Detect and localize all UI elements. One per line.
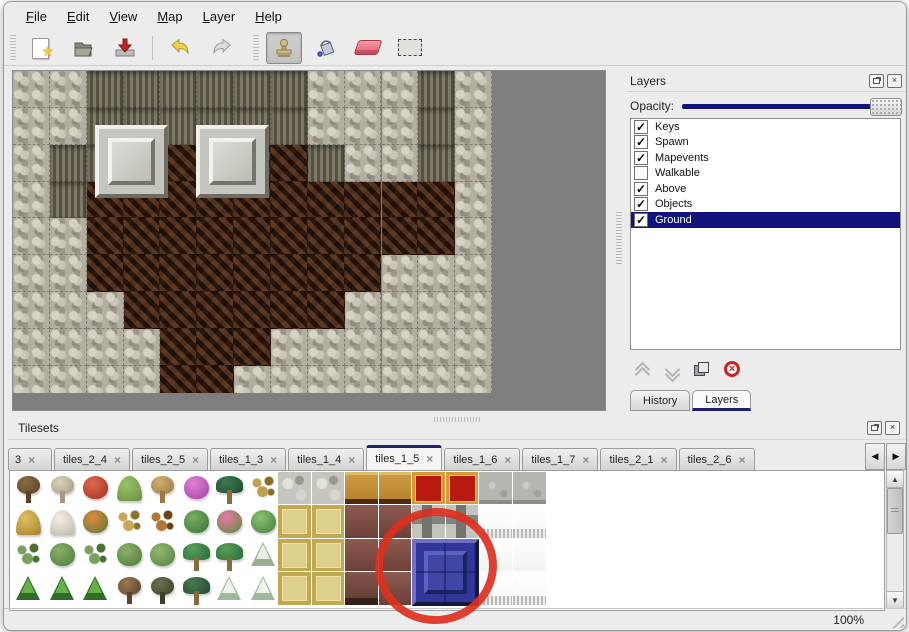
palette-tile-whitefringe[interactable] (479, 572, 512, 605)
tab-close-icon[interactable]: × (582, 454, 589, 466)
map-tile-brown-floor (234, 292, 271, 329)
palette-tile-conifer[interactable] (79, 574, 112, 607)
palette-tile-mound[interactable] (12, 507, 45, 540)
palette-tile-tancarpet[interactable] (312, 572, 345, 605)
map-tile-light-rock (271, 366, 308, 393)
map-tile-light-rock (308, 329, 345, 366)
palette-tile-tree[interactable] (113, 574, 146, 607)
tileset-tab-tiles_2_1[interactable]: tiles_2_1× (600, 448, 676, 470)
layers-panel-title: Layers (630, 74, 666, 88)
map-tile-light-rock (50, 108, 87, 145)
map-tile-light-rock (87, 329, 124, 366)
map-tile-light-rock (418, 255, 455, 292)
tileset-palette[interactable] (9, 470, 885, 611)
scrollbar-thumb[interactable] (887, 488, 903, 534)
map-tile-light-rock (124, 366, 161, 393)
map-tile-light-rock (13, 71, 50, 108)
zoom-level: 100% (833, 613, 864, 627)
palette-tile-sprig[interactable] (146, 507, 179, 540)
palette-tile-conifer[interactable] (247, 574, 280, 607)
palette-tile-blob[interactable] (79, 473, 112, 506)
tab-label: tiles_1_7 (531, 454, 575, 466)
palette-tile-wood[interactable] (379, 472, 412, 505)
palette-tile-tree[interactable] (12, 473, 45, 506)
map-canvas-panel (12, 70, 606, 411)
tab-prev-icon[interactable]: ◀ (865, 443, 885, 470)
layer-checkbox[interactable]: ✓ (634, 151, 648, 165)
map-tile-light-rock (13, 292, 50, 329)
map-tile-light-rock (382, 71, 419, 108)
palette-tile-blob[interactable] (180, 507, 213, 540)
menu-edit[interactable]: Edit (57, 6, 99, 27)
palette-tile-tree[interactable] (146, 473, 179, 506)
layer-row-objects[interactable]: ✓Objects (631, 197, 900, 213)
eraser-tool-button[interactable] (350, 32, 386, 64)
layer-row-walkable[interactable]: Walkable (631, 166, 900, 182)
palette-tile-brown[interactable] (379, 505, 412, 538)
map-tile-light-rock (382, 255, 419, 292)
app-window: FileEditViewMapLayerHelp ★ (3, 1, 907, 631)
tilesets-title: Tilesets (18, 421, 59, 435)
palette-tile-blob[interactable] (146, 540, 179, 573)
map-tile-light-rock (50, 218, 87, 255)
opacity-slider-handle[interactable] (870, 98, 902, 116)
map-tile-light-rock (382, 292, 419, 329)
tab-label: tiles_1_6 (453, 454, 497, 466)
layer-name: Spawn (655, 136, 689, 148)
map-tile-brown-floor (382, 182, 419, 219)
map-tile-brown-floor (271, 292, 308, 329)
resize-grip[interactable] (889, 613, 904, 628)
tilesets-titlebar: Tilesets × (8, 416, 906, 440)
map-tile-light-rock (382, 108, 419, 145)
layers-panel: Layers × Opacity: ✓Keys✓Spawn✓MapeventsW… (626, 70, 906, 411)
map-tile-light-rock (87, 292, 124, 329)
stamp-tool-button[interactable] (266, 32, 302, 64)
scroll-down-icon[interactable]: ▼ (887, 591, 903, 608)
palette-tile-tancarpet[interactable] (312, 505, 345, 538)
map-tile-light-rock (308, 71, 345, 108)
palette-tile-blob[interactable] (213, 507, 246, 540)
map-tile-brown-floor (87, 255, 124, 292)
map-tile-brown-floor (271, 255, 308, 292)
palette-tile-graystone[interactable] (513, 472, 546, 505)
fill-bucket-icon (314, 36, 338, 60)
palette-tile-blob[interactable] (247, 507, 280, 540)
map-tile-light-rock (13, 366, 50, 393)
undo-icon (168, 36, 192, 60)
map-tile-light-rock (271, 329, 308, 366)
map-tile-brown-floor (124, 218, 161, 255)
opacity-slider-track[interactable] (682, 104, 900, 109)
layer-row-above[interactable]: ✓Above (631, 181, 900, 197)
map-tile-light-rock (345, 329, 382, 366)
map-tile-light-rock (13, 218, 50, 255)
menu-file[interactable]: File (16, 6, 57, 27)
layer-row-ground[interactable]: ✓Ground (631, 212, 900, 228)
palette-tile-sprig[interactable] (247, 473, 280, 506)
palette-tile-browndark[interactable] (345, 572, 378, 605)
dock-tab-layers[interactable]: Layers (692, 390, 751, 411)
tab-close-icon[interactable]: × (660, 454, 667, 466)
palette-tile-white[interactable] (513, 539, 546, 572)
open-folder-icon (71, 36, 95, 60)
palette-tile-tancarpet[interactable] (278, 539, 311, 572)
tab-close-icon[interactable]: × (348, 454, 355, 466)
select-tool-button[interactable] (392, 32, 428, 64)
map-tile-light-rock (345, 108, 382, 145)
map-tile-brown-floor (345, 218, 382, 255)
tab-label: tiles_2_6 (688, 454, 732, 466)
close-panel-icon[interactable]: × (887, 74, 902, 88)
map-tile-brown-floor (308, 218, 345, 255)
palette-tile-tree[interactable] (146, 574, 179, 607)
map-tile-dark-cliff (418, 145, 455, 182)
tileset-tab-tiles_2_6[interactable]: tiles_2_6× (679, 448, 755, 470)
move-layer-up-icon[interactable] (634, 361, 650, 377)
new-file-icon: ★ (31, 37, 51, 59)
palette-tile-sprig[interactable] (79, 540, 112, 573)
layer-buttons: × (634, 356, 894, 382)
map-tile-brown-floor (197, 329, 234, 366)
move-layer-down-icon[interactable] (664, 361, 680, 377)
map-tile-light-rock (13, 145, 50, 182)
tileset-tabbar: 3×tiles_2_4×tiles_2_5×tiles_1_3×tiles_1_… (8, 442, 906, 470)
layer-checkbox[interactable] (634, 166, 648, 180)
stamp-icon (272, 36, 296, 60)
tab-close-icon[interactable]: × (739, 454, 746, 466)
layer-name: Mapevents (655, 152, 709, 164)
palette-tile-wood[interactable] (345, 472, 378, 505)
layer-checkbox[interactable]: ✓ (634, 213, 648, 227)
map-tile-light-rock (382, 329, 419, 366)
palette-tile-brown[interactable] (379, 572, 412, 605)
map-tile-light-rock (308, 366, 345, 393)
map-tile-brown-floor (345, 182, 382, 219)
map-tile-brown-floor (234, 329, 271, 366)
layer-row-mapevents[interactable]: ✓Mapevents (631, 150, 900, 166)
layer-name: Walkable (655, 167, 700, 179)
map-tile-light-rock (455, 182, 492, 219)
palette-tile-stone[interactable] (278, 472, 311, 505)
map-canvas[interactable] (13, 71, 492, 393)
map-tile-light-rock (124, 329, 161, 366)
dock-tab-history[interactable]: History (630, 390, 690, 411)
tab-close-icon[interactable]: × (114, 454, 121, 466)
map-tile-dark-cliff (418, 108, 455, 145)
map-tile-light-rock (50, 329, 87, 366)
float-panel-icon[interactable] (869, 74, 884, 88)
map-tile-brown-floor (160, 329, 197, 366)
map-tile-light-rock (345, 145, 382, 182)
layer-row-keys[interactable]: ✓Keys (631, 119, 900, 135)
palette-tile-brown[interactable] (345, 505, 378, 538)
tileset-tab-3[interactable]: 3× (8, 448, 52, 470)
palette-tile-brown[interactable] (379, 539, 412, 572)
toolbar: ★ (4, 30, 906, 66)
map-tile-dark-cliff (50, 145, 87, 182)
map-tile-light-rock (50, 71, 87, 108)
save-icon (113, 36, 137, 60)
map-tile-brown-floor (124, 255, 161, 292)
palette-tile-metal[interactable] (412, 505, 445, 538)
map-tile-light-rock (345, 292, 382, 329)
layer-checkbox[interactable]: ✓ (634, 197, 648, 211)
palette-tile-graystone[interactable] (479, 472, 512, 505)
palette-scrollbar[interactable]: ▲ ▼ (886, 470, 904, 609)
stone-platform (196, 125, 269, 198)
tab-label: tiles_2_4 (63, 454, 107, 466)
status-bar: 100% (4, 608, 906, 630)
menu-view[interactable]: View (99, 6, 147, 27)
map-tile-light-rock (87, 366, 124, 393)
map-tile-brown-floor (197, 255, 234, 292)
map-tile-light-rock (13, 255, 50, 292)
map-tile-brown-floor (197, 218, 234, 255)
map-tile-dark-cliff (197, 71, 234, 108)
tileset-tab-tiles_1_6[interactable]: tiles_1_6× (444, 448, 520, 470)
tab-close-icon[interactable]: × (192, 454, 199, 466)
layer-checkbox[interactable]: ✓ (634, 135, 648, 149)
layer-checkbox[interactable]: ✓ (634, 120, 648, 134)
palette-tile-brown[interactable] (345, 539, 378, 572)
map-tile-dark-cliff (418, 71, 455, 108)
map-tile-brown-floor (418, 218, 455, 255)
palette-tile-conifer[interactable] (12, 574, 45, 607)
map-tile-brown-floor (234, 255, 271, 292)
eraser-icon (354, 40, 383, 55)
map-tile-dark-cliff (271, 108, 308, 145)
map-tile-light-rock (50, 292, 87, 329)
map-tile-brown-floor (271, 218, 308, 255)
layer-name: Ground (655, 214, 692, 226)
map-tile-brown-floor (382, 218, 419, 255)
map-tile-light-rock (234, 366, 271, 393)
map-tile-brown-floor (160, 292, 197, 329)
tab-next-icon[interactable]: ▶ (886, 443, 906, 470)
tab-label: tiles_2_5 (141, 454, 185, 466)
tab-label: tiles_2_1 (609, 454, 653, 466)
palette-tile-palm[interactable] (180, 540, 213, 573)
palette-tile-conifer[interactable] (46, 574, 79, 607)
map-tile-light-rock (455, 108, 492, 145)
map-tile-brown-floor (418, 182, 455, 219)
layers-panel-titlebar: Layers × (626, 70, 906, 92)
map-tile-light-rock (455, 329, 492, 366)
layer-checkbox[interactable]: ✓ (634, 182, 648, 196)
map-tile-light-rock (308, 108, 345, 145)
palette-tile-tancarpet[interactable] (312, 539, 345, 572)
redo-button[interactable] (204, 32, 240, 64)
tileset-tab-tiles_2_4[interactable]: tiles_2_4× (54, 448, 130, 470)
map-tile-dark-cliff (87, 71, 124, 108)
menu-help[interactable]: Help (245, 6, 292, 27)
new-file-button[interactable]: ★ (23, 32, 59, 64)
palette-tile-conifer[interactable] (247, 540, 280, 573)
fill-tool-button[interactable] (308, 32, 344, 64)
map-tile-brown-floor (197, 292, 234, 329)
tab-label: tiles_1_5 (375, 453, 419, 465)
selected-tile-blue[interactable] (412, 539, 479, 606)
map-tile-brown-floor (234, 218, 271, 255)
map-tile-brown-floor (271, 145, 308, 182)
redo-icon (210, 36, 234, 60)
map-tile-light-rock (382, 145, 419, 182)
map-tile-brown-floor (308, 292, 345, 329)
palette-tile-palm[interactable] (213, 473, 246, 506)
map-tile-light-rock (418, 292, 455, 329)
map-tile-light-rock (50, 255, 87, 292)
palette-tile-redcarpet[interactable] (412, 472, 445, 505)
layer-name: Above (655, 183, 686, 195)
tileset-tab-tiles_1_4[interactable]: tiles_1_4× (288, 448, 364, 470)
vertical-splitter[interactable] (616, 212, 622, 264)
palette-tile-metal[interactable] (446, 505, 479, 538)
map-tile-light-rock (382, 366, 419, 393)
palette-tile-tree[interactable] (46, 473, 79, 506)
menu-layer[interactable]: Layer (193, 6, 246, 27)
tileset-tab-tiles_1_5[interactable]: tiles_1_5× (366, 445, 442, 470)
palette-tile-conifer[interactable] (213, 574, 246, 607)
undo-button[interactable] (162, 32, 198, 64)
map-tile-brown-floor (160, 255, 197, 292)
palette-tile-redcarpet[interactable] (446, 472, 479, 505)
palette-tile-sprig[interactable] (12, 540, 45, 573)
tileset-tab-tiles_1_7[interactable]: tiles_1_7× (522, 448, 598, 470)
toolbar-grip-2[interactable] (253, 35, 259, 61)
map-tile-light-rock (50, 366, 87, 393)
map-tile-dark-cliff (308, 145, 345, 182)
tab-close-icon[interactable]: × (270, 454, 277, 466)
map-tile-light-rock (13, 108, 50, 145)
map-tile-light-rock (455, 292, 492, 329)
map-tile-light-rock (418, 329, 455, 366)
opacity-slider[interactable] (682, 98, 902, 114)
tileset-tab-tiles_1_3[interactable]: tiles_1_3× (210, 448, 286, 470)
palette-tile-palm[interactable] (180, 574, 213, 607)
map-tile-brown-floor (308, 182, 345, 219)
layer-row-spawn[interactable]: ✓Spawn (631, 135, 900, 151)
menu-bar: FileEditViewMapLayerHelp (4, 2, 906, 30)
palette-tile-tancarpet[interactable] (278, 505, 311, 538)
map-tile-brown-floor (160, 366, 197, 393)
map-tile-light-rock (345, 71, 382, 108)
tab-label: tiles_1_3 (219, 454, 263, 466)
palette-tile-whitefringe[interactable] (513, 505, 546, 538)
close-tilesets-icon[interactable]: × (885, 421, 900, 435)
palette-tile-stone[interactable] (312, 472, 345, 505)
float-tilesets-icon[interactable] (867, 421, 882, 435)
tab-close-icon[interactable]: × (28, 454, 35, 466)
tab-label: tiles_1_4 (297, 454, 341, 466)
tab-label: 3 (15, 454, 21, 466)
layer-list: ✓Keys✓Spawn✓MapeventsWalkable✓Above✓Obje… (630, 118, 901, 350)
delete-layer-icon[interactable]: × (724, 361, 740, 377)
open-file-button[interactable] (65, 32, 101, 64)
map-tile-light-rock (418, 366, 455, 393)
palette-tile-white[interactable] (479, 539, 512, 572)
map-tile-light-rock (455, 145, 492, 182)
map-tile-brown-floor (160, 218, 197, 255)
map-tile-brown-floor (271, 182, 308, 219)
palette-tile-blob[interactable] (46, 540, 79, 573)
palette-tile-mound[interactable] (113, 473, 146, 506)
map-tile-light-rock (455, 218, 492, 255)
tab-close-icon[interactable]: × (504, 454, 511, 466)
save-file-button[interactable] (107, 32, 143, 64)
select-rect-icon (398, 39, 422, 56)
map-tile-light-rock (455, 71, 492, 108)
map-tile-brown-floor (308, 255, 345, 292)
map-tile-brown-floor (197, 366, 234, 393)
dock-tabs: HistoryLayers (630, 390, 751, 411)
palette-tile-blob[interactable] (113, 540, 146, 573)
tab-close-icon[interactable]: × (426, 453, 433, 465)
palette-tile-whitefringe[interactable] (513, 572, 546, 605)
map-tile-brown-floor (87, 218, 124, 255)
palette-tile-palm[interactable] (213, 540, 246, 573)
map-tile-brown-floor (124, 292, 161, 329)
palette-tile-sprig[interactable] (113, 507, 146, 540)
map-tile-brown-floor (345, 255, 382, 292)
toolbar-separator (152, 36, 153, 60)
menu-map[interactable]: Map (147, 6, 192, 27)
toolbar-grip[interactable] (10, 35, 16, 61)
layer-name: Keys (655, 121, 679, 133)
map-tile-light-rock (455, 366, 492, 393)
palette-tile-blob[interactable] (79, 507, 112, 540)
duplicate-layer-icon[interactable] (694, 362, 710, 376)
opacity-label: Opacity: (630, 99, 674, 113)
map-tile-dark-cliff (160, 71, 197, 108)
map-tile-light-rock (345, 366, 382, 393)
tilesets-panel: Tilesets × 3×tiles_2_4×tiles_2_5×tiles_1… (8, 416, 906, 612)
map-tile-dark-cliff (124, 71, 161, 108)
map-tile-dark-cliff (234, 71, 271, 108)
layer-name: Objects (655, 198, 692, 210)
palette-tile-mound[interactable] (46, 507, 79, 540)
map-tile-dark-cliff (271, 71, 308, 108)
tileset-tab-tiles_2_5[interactable]: tiles_2_5× (132, 448, 208, 470)
map-tile-light-rock (13, 182, 50, 219)
map-tile-light-rock (455, 255, 492, 292)
stone-platform (95, 125, 168, 198)
palette-tile-blob[interactable] (180, 473, 213, 506)
palette-tile-whitefringe[interactable] (479, 505, 512, 538)
palette-tile-tancarpet[interactable] (278, 572, 311, 605)
scroll-up-icon[interactable]: ▲ (887, 471, 903, 488)
map-tile-light-rock (13, 329, 50, 366)
map-tile-dark-cliff (50, 182, 87, 219)
